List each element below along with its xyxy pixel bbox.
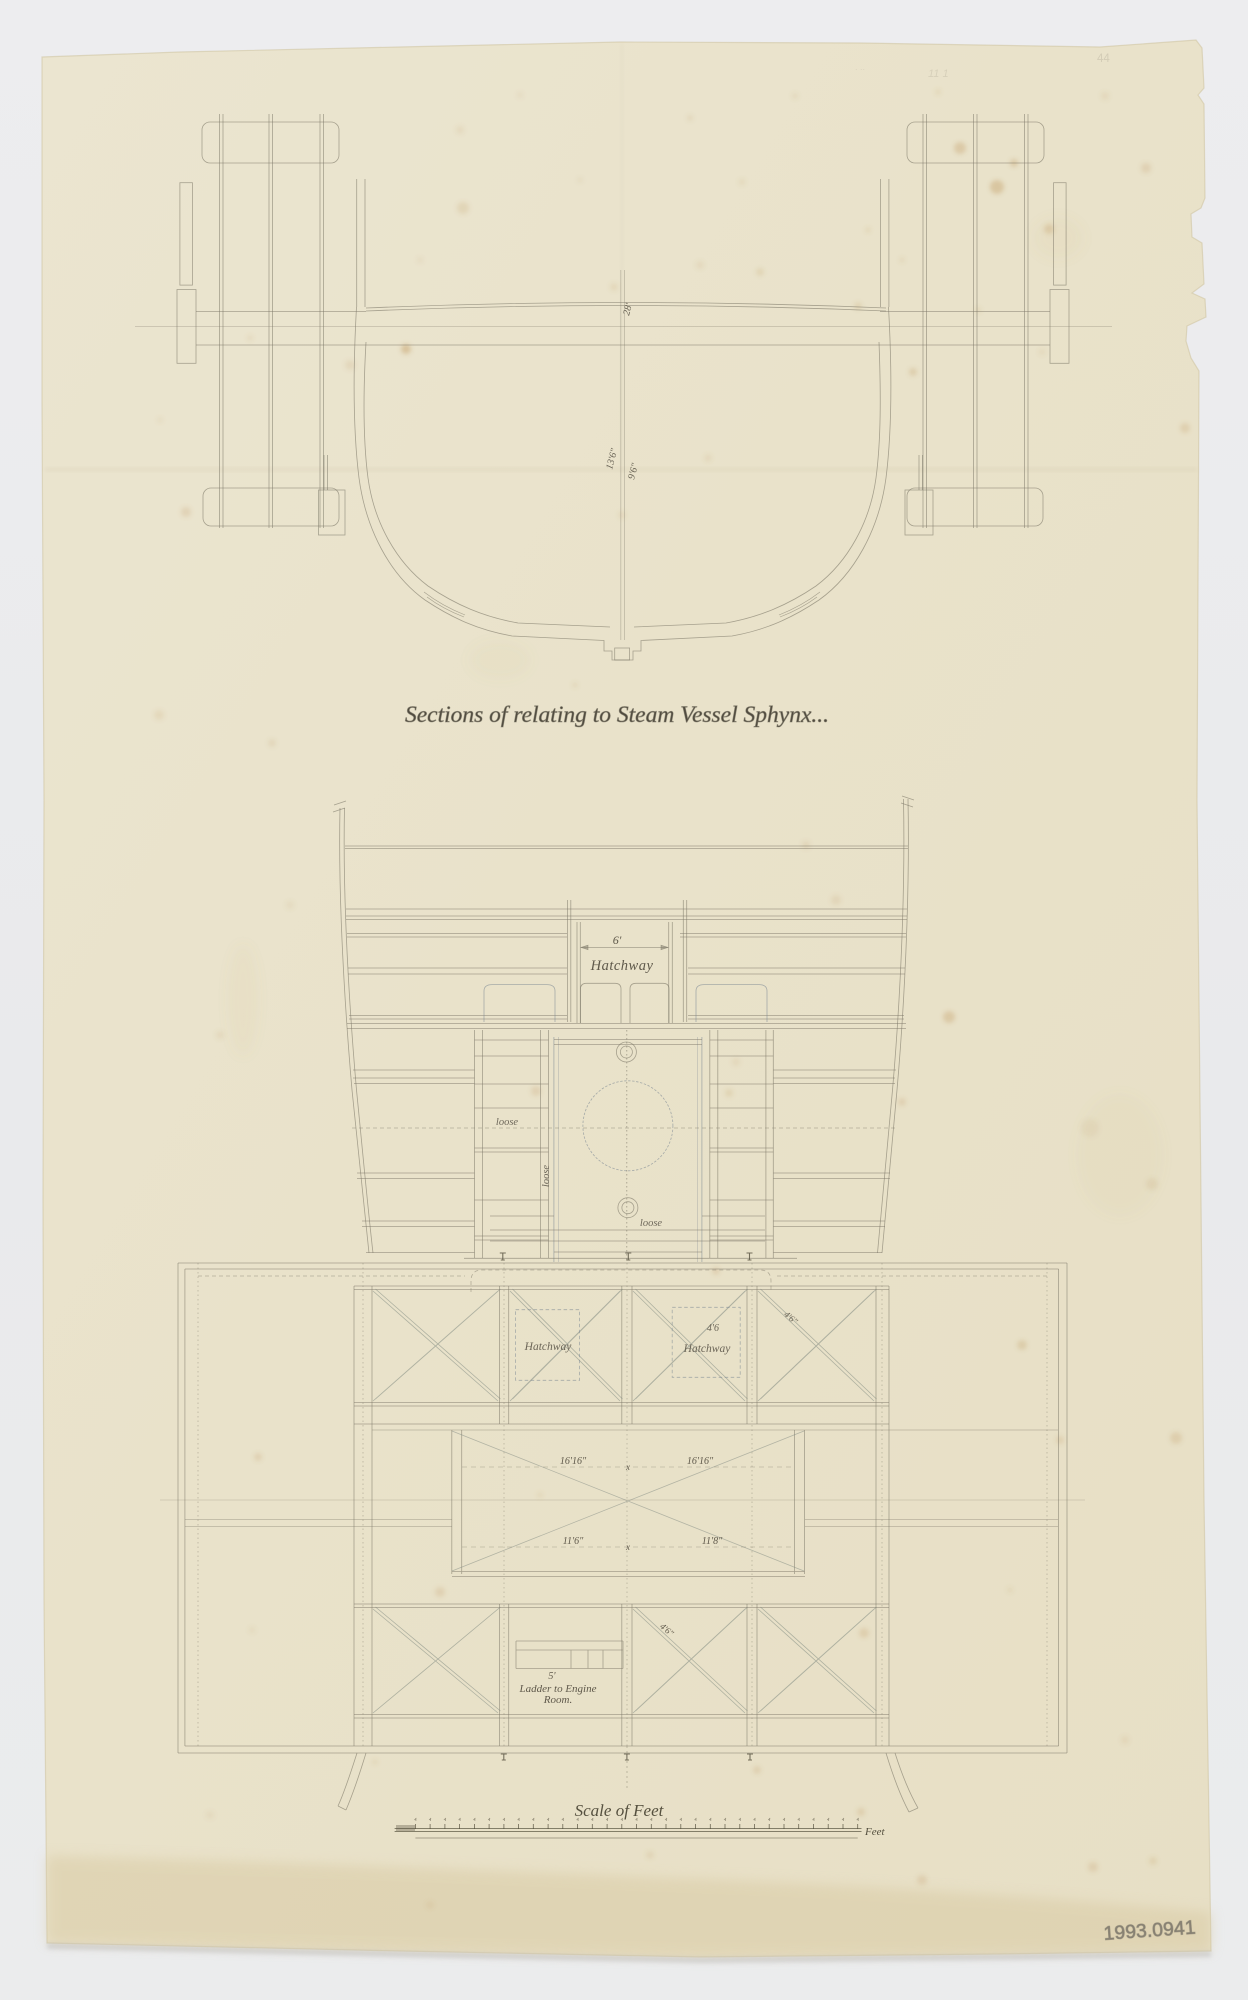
svg-text:loose: loose	[640, 1218, 663, 1229]
svg-text:loose: loose	[496, 1117, 519, 1128]
svg-text:11'8": 11'8"	[702, 1536, 723, 1547]
svg-text:loose: loose	[541, 1165, 552, 1188]
svg-text:4'6: 4'6	[707, 1323, 719, 1334]
svg-text:Hatchway: Hatchway	[590, 958, 654, 974]
svg-text:6': 6'	[613, 933, 622, 947]
svg-text:Sections of relating to Steam: Sections of relating to Steam Vessel Sph…	[405, 702, 829, 728]
svg-text:Hatchway: Hatchway	[683, 1343, 732, 1355]
svg-text:16'16": 16'16"	[687, 1456, 714, 1467]
svg-text:Feet: Feet	[864, 1826, 885, 1838]
svg-text:. ..: . ..	[855, 62, 865, 72]
svg-text:11'6": 11'6"	[563, 1536, 584, 1547]
svg-text:5': 5'	[548, 1671, 556, 1682]
svg-text:Hatchway: Hatchway	[524, 1341, 573, 1353]
svg-text:11 1: 11 1	[928, 68, 949, 80]
svg-text:x: x	[625, 1462, 630, 1472]
svg-text:Room.: Room.	[543, 1694, 572, 1706]
svg-text:x: x	[625, 1542, 630, 1552]
svg-text:16'16": 16'16"	[560, 1456, 587, 1467]
svg-text:44: 44	[1097, 53, 1110, 65]
svg-text:Scale of Feet: Scale of Feet	[575, 1801, 665, 1820]
